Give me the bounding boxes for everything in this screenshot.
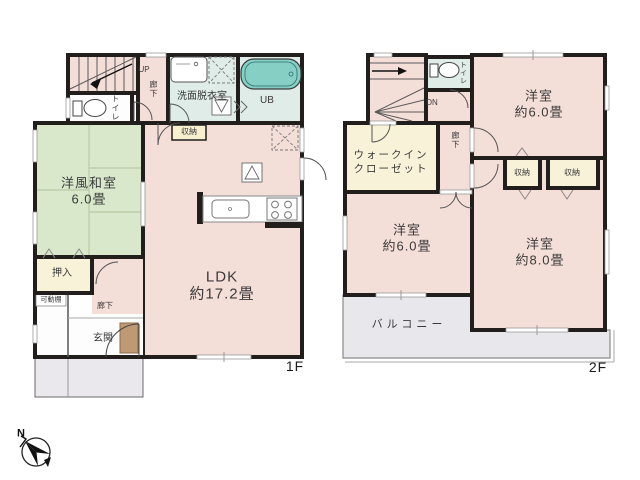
stairs-down-label: DN xyxy=(426,99,438,107)
hall-2f-label: 廊下 xyxy=(451,131,459,149)
oshiire-label: 押入 xyxy=(52,269,72,279)
storage-a-label: 収納 xyxy=(514,169,530,177)
stairs-up-label: UP xyxy=(138,66,149,74)
bedroom-ne-size: 約6.0畳 xyxy=(514,106,563,119)
compass-north-label: N xyxy=(17,429,25,440)
storage-b-label: 収納 xyxy=(564,169,580,177)
kitchen-wall-stub xyxy=(197,192,203,224)
bedroom-sw-size: 約6.0畳 xyxy=(382,240,431,253)
bedroom-sw-name: 洋室 xyxy=(393,224,421,237)
floorplan: 洋風和室 6.0畳 LDK 約17.2畳 玄関 廊下 廊下 トイレ 洗面脱衣室 … xyxy=(0,0,640,480)
hall-upper-label: 廊下 xyxy=(149,80,157,98)
wic-label-line1: ウォークイン xyxy=(354,150,429,161)
toilet-icon-2f xyxy=(430,63,459,78)
floor2-tag: 2F xyxy=(589,360,607,374)
balcony-label: バルコニー xyxy=(372,320,447,331)
floor2-plan xyxy=(343,50,614,362)
ldk-name: LDK xyxy=(206,270,238,285)
toilet-1f-label: トイレ xyxy=(111,95,119,122)
kitchen-sink xyxy=(212,200,249,218)
compass-icon xyxy=(20,436,51,467)
storage-1f-label: 収納 xyxy=(181,128,197,136)
toilet-icon-1f xyxy=(73,100,106,117)
floor1-plan xyxy=(33,53,326,397)
bedroom-se-name: 洋室 xyxy=(526,238,554,251)
hall-lower-label: 廊下 xyxy=(97,302,113,310)
washroom-label: 洗面脱衣室 xyxy=(177,92,227,102)
ldk-size: 約17.2畳 xyxy=(189,287,254,302)
shelf-label: 可動棚 xyxy=(41,297,62,304)
porch xyxy=(35,357,143,397)
shoe-cabinet xyxy=(120,323,138,353)
bedroom-ne-name: 洋室 xyxy=(525,90,553,103)
wic-label-line2: クローゼット xyxy=(354,164,429,175)
pantry-icon xyxy=(242,163,262,182)
toilet-2f-label: トイレ xyxy=(460,61,467,85)
bath-label: UB xyxy=(260,96,274,106)
room-ldk xyxy=(143,123,302,357)
floor1-tag: 1F xyxy=(286,359,304,373)
washitsu-name: 洋風和室 xyxy=(61,177,117,190)
genkan-label: 玄関 xyxy=(93,334,113,344)
washbasin xyxy=(171,57,207,82)
washitsu-size: 6.0畳 xyxy=(71,193,106,206)
bedroom-se-size: 約8.0畳 xyxy=(515,254,564,267)
